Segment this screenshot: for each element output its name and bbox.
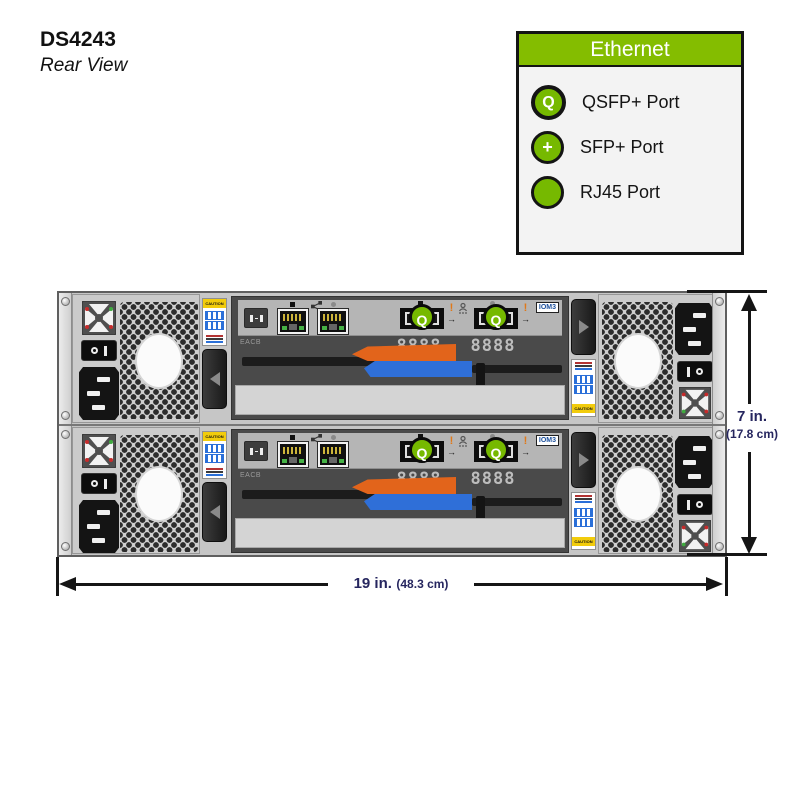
model-title: DS4243	[40, 28, 127, 52]
fan-grille	[120, 435, 198, 552]
lever-arm	[472, 498, 562, 506]
caution-label: CAUTION	[202, 298, 227, 346]
caution-label-header: CAUTION	[203, 432, 226, 441]
caution-label-header: CAUTION	[572, 537, 595, 546]
cam-latch-left	[202, 349, 227, 409]
iom-side-label: EACB	[240, 339, 261, 346]
power-switch	[81, 340, 117, 361]
fan-grille	[602, 302, 673, 419]
power-switch	[81, 473, 117, 494]
qsfp-port-marker: Q	[409, 437, 435, 463]
title-block: DS4243 Rear View	[40, 28, 127, 77]
legend-header: Ethernet	[519, 34, 741, 67]
cam-latch-right	[571, 432, 596, 488]
legend-item-qsfp: Q QSFP+ Port	[531, 80, 729, 125]
iom-port-strip: Q !→ Q !→ IOM3	[238, 300, 562, 336]
rack-ear-right	[712, 293, 725, 424]
latch-arrow-icon	[579, 320, 589, 334]
ac-power-inlet	[79, 500, 119, 553]
fan-hub	[137, 468, 181, 520]
rj45-circle-icon	[531, 176, 564, 209]
qsfp-port: Q	[400, 441, 444, 462]
led-dot-icon	[331, 435, 336, 440]
caution-label-mirrored: CAUTION	[571, 359, 596, 417]
cam-lever-orange	[352, 477, 456, 494]
power-switch	[677, 494, 713, 515]
arrow-down-icon	[741, 537, 757, 554]
disk-shelf-rear: CAUTION	[59, 426, 725, 555]
iom-side-label: EACB	[240, 472, 261, 479]
height-dimension-label: 7 in. (17.8 cm)	[707, 408, 797, 442]
legend-items: Q QSFP+ Port + SFP+ Port RJ45 Port	[519, 67, 741, 215]
iom-model-badge: IOM3	[536, 435, 559, 446]
qsfp-port-marker: Q	[483, 437, 509, 463]
fault-led-chip	[244, 441, 268, 461]
ac-power-inlet	[675, 436, 713, 488]
height-dim-line	[748, 452, 751, 540]
rj45-ethernet-port	[278, 442, 308, 467]
attention-mark: !→	[521, 303, 530, 324]
fan-hub	[137, 335, 181, 387]
power-switch	[677, 361, 713, 382]
iom-controller-module: Q !→ Q !→ IOM3	[231, 429, 569, 553]
iom-model-badge: IOM3	[536, 302, 559, 313]
psu-fan-icon	[82, 301, 116, 335]
rack-ear-left	[59, 293, 72, 424]
screw-icon	[61, 430, 70, 439]
qsfp-port: Q	[474, 441, 518, 462]
iom-controller-module: Q !→ Q !→ IOM3	[231, 296, 569, 420]
caution-label-header: CAUTION	[203, 299, 226, 308]
screw-icon	[715, 542, 724, 551]
screw-icon	[61, 297, 70, 306]
arrow-right-icon	[706, 577, 723, 591]
caution-label-header: CAUTION	[572, 404, 595, 413]
arrow-up-icon	[741, 294, 757, 311]
lever-arm	[472, 365, 562, 373]
led-dot-icon	[331, 302, 336, 307]
power-supply-left	[72, 294, 200, 423]
power-supply-right	[598, 294, 716, 423]
shelf-row-bottom: CAUTION	[59, 424, 725, 555]
latch-arrow-icon	[210, 505, 220, 519]
qsfp-port-marker: Q	[483, 304, 509, 330]
ethernet-legend: Ethernet Q QSFP+ Port + SFP+ Port RJ45 P…	[516, 31, 744, 255]
led-square-icon	[290, 302, 295, 307]
cam-lever-orange	[352, 344, 456, 361]
qsfp-circle-icon: Q	[531, 85, 566, 120]
legend-label: QSFP+ Port	[582, 92, 680, 113]
screw-icon	[61, 411, 70, 420]
sfp-circle-icon: +	[531, 131, 564, 164]
iom-port-strip: Q !→ Q !→ IOM3	[238, 433, 562, 469]
acp-icon	[457, 302, 469, 314]
blank-bay-panel	[235, 518, 565, 548]
switch-on-mark	[104, 346, 107, 356]
shelf-row-top: CAUTION	[59, 293, 725, 424]
disk-shelf-chassis: CAUTION	[57, 291, 727, 557]
attention-mark: !→	[447, 303, 456, 324]
psu-fan-icon	[82, 434, 116, 468]
fan-grille	[602, 435, 673, 552]
rack-ear-left	[59, 426, 72, 555]
rj45-ethernet-port	[278, 309, 308, 334]
arrow-left-icon	[59, 577, 76, 591]
height-dim-line	[748, 306, 751, 404]
psu-fan-icon	[679, 520, 711, 552]
sas-connector-pins: 8888	[468, 469, 518, 489]
legend-label: SFP+ Port	[580, 137, 664, 158]
power-supply-left	[72, 427, 200, 554]
ac-power-inlet	[79, 367, 119, 420]
diagram-canvas: DS4243 Rear View Ethernet Q QSFP+ Port +…	[0, 0, 800, 800]
power-supply-right	[598, 427, 716, 554]
sas-connector-pins: 8888	[468, 336, 518, 356]
switch-on-mark	[104, 479, 107, 489]
rj45-ethernet-port	[318, 442, 348, 467]
width-dimension-label: 19 in. (48.3 cm)	[328, 575, 474, 593]
ac-power-inlet	[675, 303, 713, 355]
view-subtitle: Rear View	[40, 55, 127, 77]
legend-label: RJ45 Port	[580, 182, 660, 203]
height-dim-tick-top	[687, 290, 767, 293]
qsfp-port-marker: Q	[409, 304, 435, 330]
caution-label: CAUTION	[202, 431, 227, 479]
acp-icon	[457, 435, 469, 447]
legend-item-sfp: + SFP+ Port	[531, 125, 729, 170]
width-dim-line	[474, 583, 714, 586]
fan-hub	[616, 468, 660, 520]
latch-arrow-icon	[210, 372, 220, 386]
blank-bay-panel	[235, 385, 565, 415]
legend-item-rj45: RJ45 Port	[531, 170, 729, 215]
fan-hub	[616, 335, 660, 387]
disk-shelf-rear: CAUTION	[59, 293, 725, 424]
caution-label-mirrored: CAUTION	[571, 492, 596, 550]
led-square-icon	[290, 435, 295, 440]
attention-mark: !→	[447, 436, 456, 457]
fan-grille	[120, 302, 198, 419]
width-dim-line	[72, 583, 328, 586]
switch-off-mark	[91, 480, 98, 487]
cam-latch-right	[571, 299, 596, 355]
rack-ear-right	[712, 426, 725, 555]
screw-icon	[715, 297, 724, 306]
switch-off-mark	[91, 347, 98, 354]
width-dim-tick-right	[725, 557, 728, 596]
fault-led-chip	[244, 308, 268, 328]
qsfp-port: Q	[474, 308, 518, 329]
latch-arrow-icon	[579, 453, 589, 467]
rj45-ethernet-port	[318, 309, 348, 334]
cam-lever-blue	[364, 494, 472, 510]
cam-lever-blue	[364, 361, 472, 377]
attention-mark: !→	[521, 436, 530, 457]
cam-latch-left	[202, 482, 227, 542]
qsfp-port: Q	[400, 308, 444, 329]
screw-icon	[61, 542, 70, 551]
